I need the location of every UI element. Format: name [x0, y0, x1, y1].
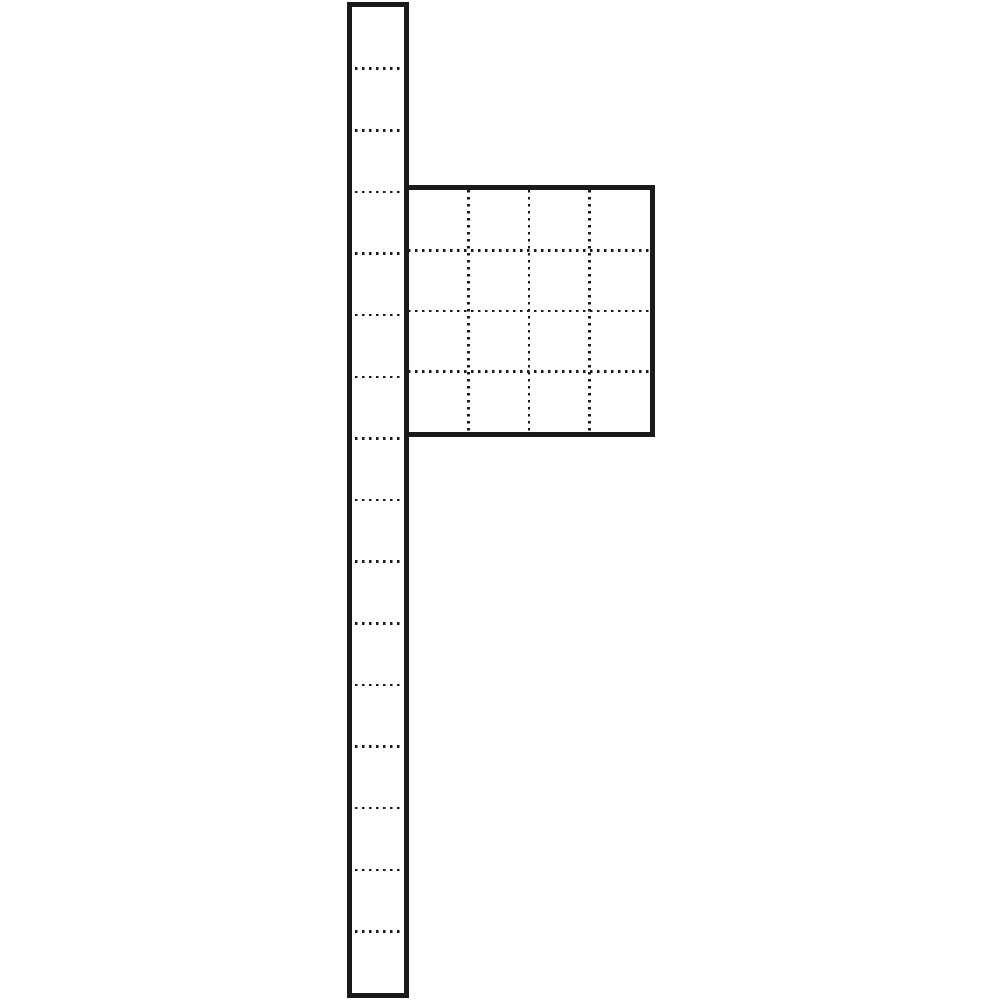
drawing-canvas — [0, 0, 1000, 1000]
panel-grid-line-horizontal — [408, 370, 650, 373]
post-segment-divider — [355, 560, 401, 563]
post-segment-divider — [355, 499, 401, 502]
post-segment-divider — [355, 437, 401, 440]
post-segment-divider — [355, 684, 401, 687]
post-segment-divider — [355, 314, 401, 317]
post-segment-divider — [355, 930, 401, 933]
post-segment-divider — [355, 67, 401, 70]
post-segment-divider — [355, 745, 401, 748]
panel-grid-line-vertical — [467, 190, 470, 432]
panel-grid-line-vertical — [588, 190, 591, 432]
post-segment-divider — [355, 191, 401, 194]
panel-rectangle — [403, 185, 655, 437]
post-rectangle — [347, 2, 409, 998]
post-segment-divider — [355, 129, 401, 132]
post-segment-divider — [355, 376, 401, 379]
post-segment-divider — [355, 252, 401, 255]
post-segment-divider — [355, 622, 401, 625]
post-segment-divider — [355, 869, 401, 872]
panel-grid-line-horizontal — [408, 310, 650, 313]
post-segment-divider — [355, 807, 401, 810]
panel-grid-line-horizontal — [408, 249, 650, 252]
panel-grid-line-vertical — [528, 190, 531, 432]
